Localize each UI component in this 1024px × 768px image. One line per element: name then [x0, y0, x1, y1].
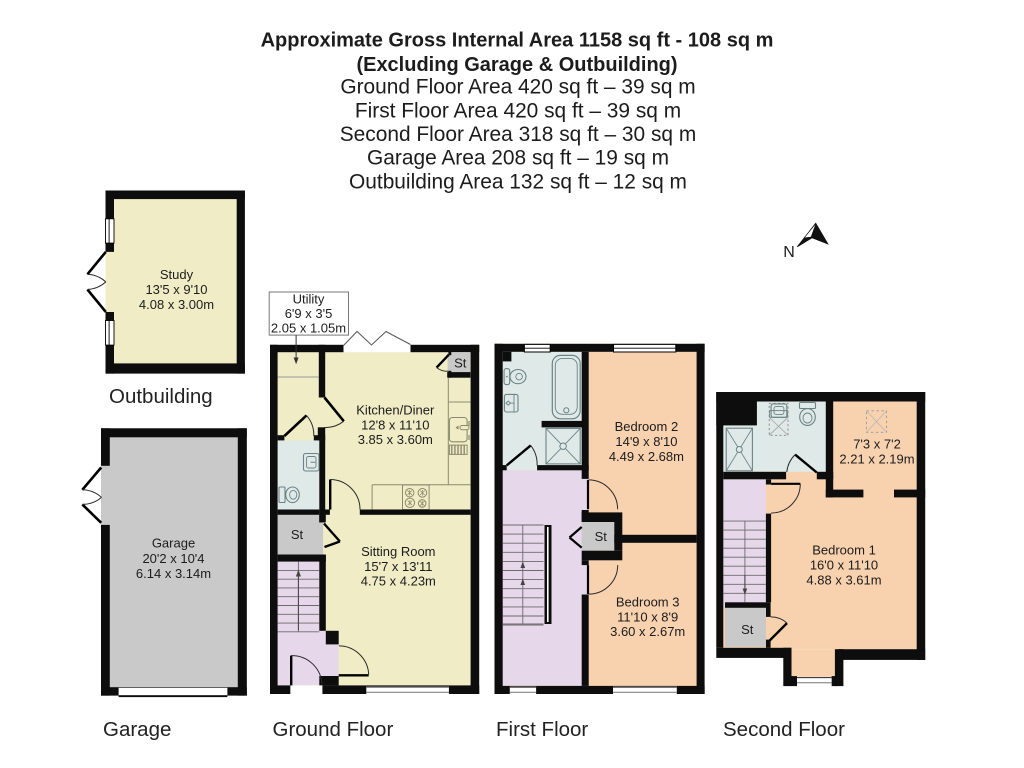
svg-text:Study: Study: [160, 267, 194, 282]
svg-text:20'2 x 10'4: 20'2 x 10'4: [142, 551, 204, 566]
svg-text:St: St: [741, 622, 754, 637]
svg-text:Outbuilding Area 132 sq ft – 1: Outbuilding Area 132 sq ft – 12 sq m: [349, 170, 687, 193]
svg-text:St: St: [291, 527, 304, 542]
svg-text:Kitchen/Diner: Kitchen/Diner: [356, 402, 435, 417]
svg-text:Second Floor: Second Floor: [723, 718, 845, 741]
svg-text:Garage Area 208 sq ft – 19 sq: Garage Area 208 sq ft – 19 sq m: [367, 147, 669, 170]
svg-text:6.14 x 3.14m: 6.14 x 3.14m: [136, 566, 211, 581]
svg-text:15'7 x 13'11: 15'7 x 13'11: [364, 559, 432, 574]
svg-text:Bedroom 2: Bedroom 2: [615, 419, 679, 434]
svg-text:13'5 x 9'10: 13'5 x 9'10: [145, 282, 207, 297]
svg-text:4.49 x 2.68m: 4.49 x 2.68m: [609, 449, 684, 464]
svg-text:Utility: Utility: [293, 292, 325, 307]
svg-text:Sitting Room: Sitting Room: [361, 544, 435, 559]
svg-text:Second Floor Area 318 sq ft –: Second Floor Area 318 sq ft – 30 sq m: [340, 123, 697, 146]
svg-text:2.21 x 2.19m: 2.21 x 2.19m: [839, 452, 914, 467]
svg-text:12'8 x 11'10: 12'8 x 11'10: [361, 417, 429, 432]
svg-text:St: St: [595, 529, 608, 544]
svg-text:First Floor Area 420 sq ft – 3: First Floor Area 420 sq ft – 39 sq m: [355, 99, 681, 122]
svg-text:N: N: [783, 244, 795, 261]
svg-text:Bedroom 3: Bedroom 3: [616, 595, 680, 610]
svg-text:11'10 x 8'9: 11'10 x 8'9: [617, 610, 678, 625]
svg-text:Outbuilding: Outbuilding: [109, 385, 213, 408]
svg-text:Garage: Garage: [103, 718, 171, 741]
svg-text:Bedroom 1: Bedroom 1: [812, 543, 876, 558]
svg-text:4.08 x 3.00m: 4.08 x 3.00m: [139, 297, 214, 312]
svg-text:Ground Floor: Ground Floor: [273, 718, 394, 741]
svg-text:4.88 x 3.61m: 4.88 x 3.61m: [806, 573, 881, 588]
svg-text:(Excluding Garage & Outbuildin: (Excluding Garage & Outbuilding): [356, 54, 677, 76]
svg-text:Garage: Garage: [152, 536, 195, 551]
svg-text:3.85 x 3.60m: 3.85 x 3.60m: [358, 432, 433, 447]
svg-text:16'0 x 11'10: 16'0 x 11'10: [810, 558, 878, 573]
svg-text:7'3 x 7'2: 7'3 x 7'2: [853, 437, 901, 452]
svg-text:3.60 x 2.67m: 3.60 x 2.67m: [610, 624, 685, 639]
svg-text:14'9 x 8'10: 14'9 x 8'10: [615, 434, 677, 449]
svg-text:4.75 x 4.23m: 4.75 x 4.23m: [361, 574, 436, 589]
svg-text:Approximate Gross Internal Are: Approximate Gross Internal Area 1158 sq …: [261, 30, 774, 52]
svg-text:First Floor: First Floor: [496, 718, 588, 741]
svg-text:6'9 x 3'5: 6'9 x 3'5: [285, 306, 333, 321]
svg-text:2.05 x 1.05m: 2.05 x 1.05m: [271, 321, 346, 336]
svg-text:Ground Floor Area 420 sq ft –: Ground Floor Area 420 sq ft – 39 sq m: [340, 76, 695, 99]
svg-text:St: St: [454, 355, 467, 370]
